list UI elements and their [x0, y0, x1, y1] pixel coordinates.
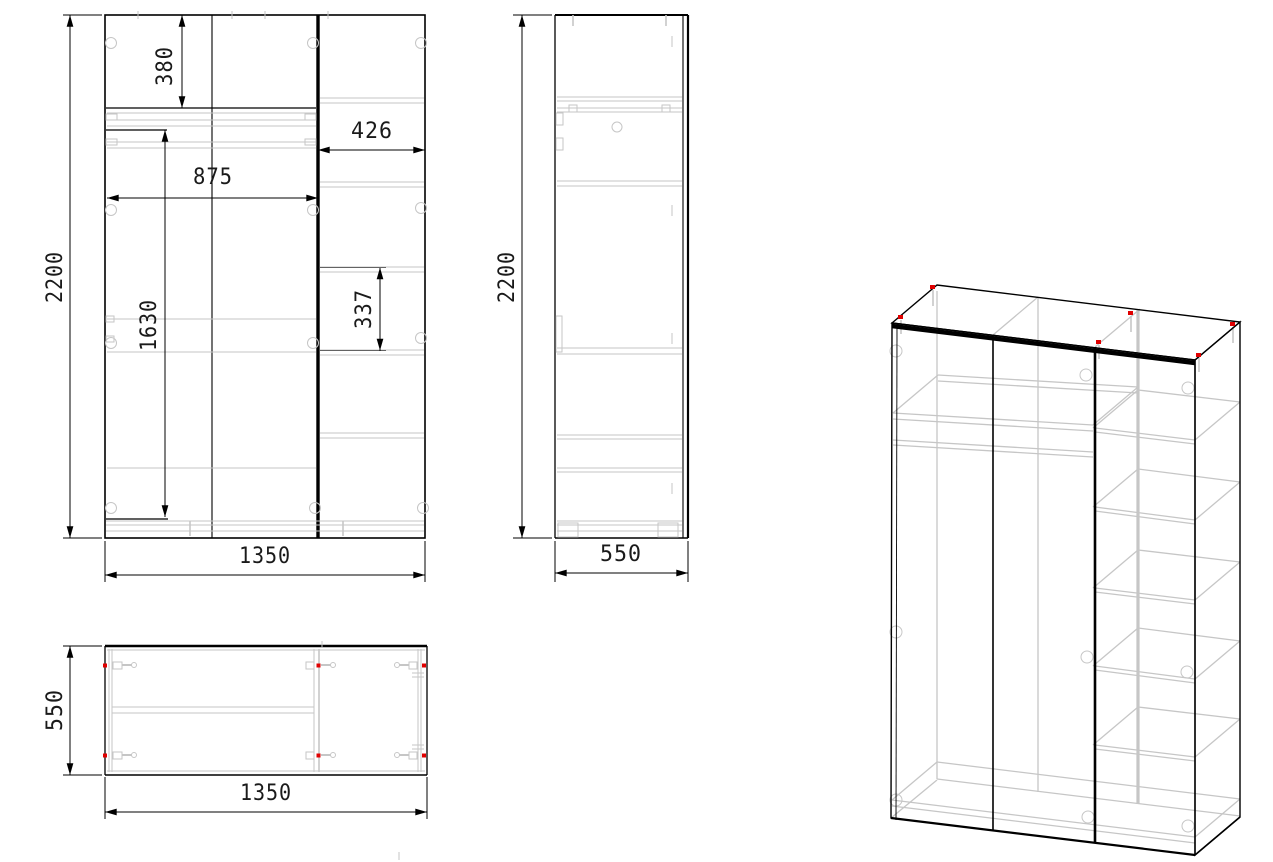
front-cabinet-outline [105, 15, 425, 538]
front-dimensions: 2200 380 875 426 1630 337 1350 [43, 15, 425, 582]
front-view: 2200 380 875 426 1630 337 1350 [43, 11, 429, 582]
top-width-dim-label: 1350 [240, 781, 292, 806]
front-interior-lines [106, 11, 424, 536]
side-depth-dim-label: 550 [600, 542, 642, 567]
technical-drawing-canvas: 2200 380 875 426 1630 337 1350 [0, 0, 1273, 862]
iso-cabinet-outline [891, 285, 1240, 855]
front-rail-height-dim-label: 1630 [137, 299, 162, 351]
top-connector-glyphs [113, 662, 424, 759]
side-height-dim-label: 2200 [495, 251, 520, 303]
iso-right-face [1195, 322, 1240, 855]
top-connector-markers [103, 664, 426, 758]
side-cam-lock-circle [612, 122, 622, 132]
top-cabinet-outline [105, 646, 427, 775]
front-shelf-gap-dim-label: 337 [352, 289, 377, 329]
front-left-width-dim-label: 875 [193, 165, 233, 190]
top-view: 550 1350 [43, 641, 427, 860]
isometric-view [890, 285, 1240, 855]
front-right-width-dim-label: 426 [351, 119, 393, 144]
side-interior-lines [556, 15, 682, 537]
side-cabinet-outline [555, 15, 688, 538]
wardrobe-assembly-drawing: 2200 380 875 426 1630 337 1350 [0, 0, 1273, 862]
side-dimensions: 2200 550 [495, 15, 688, 582]
iso-hinge-circles [890, 345, 1194, 832]
top-dimensions: 550 1350 [43, 646, 427, 819]
iso-interior-wireframe [891, 290, 1240, 843]
front-top-shelf-dim-label: 380 [153, 46, 178, 86]
front-height-dim-label: 2200 [43, 251, 68, 303]
top-depth-dim-label: 550 [43, 689, 68, 731]
top-interior-lines [103, 641, 426, 772]
front-width-dim-label: 1350 [239, 544, 291, 569]
side-view: 2200 550 [495, 15, 688, 582]
